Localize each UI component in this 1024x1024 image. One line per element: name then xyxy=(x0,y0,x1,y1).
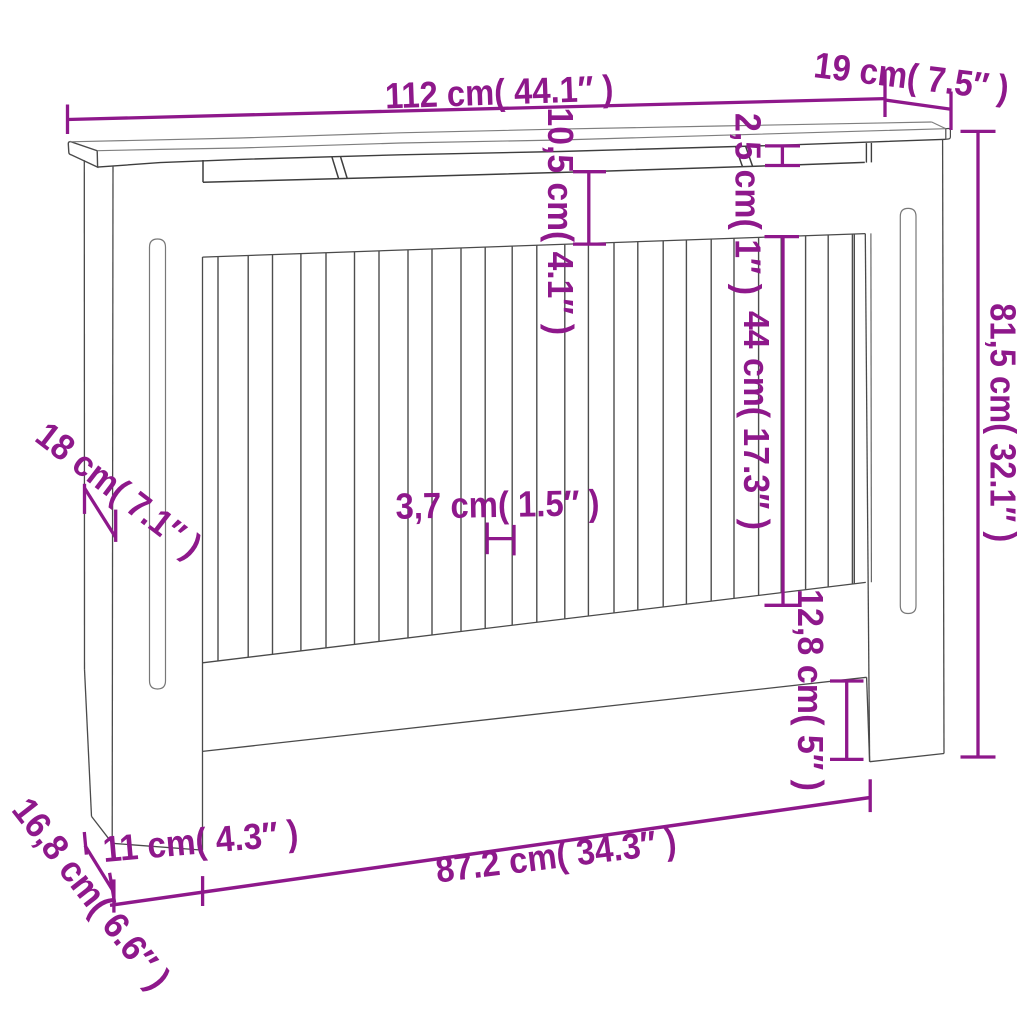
svg-text:81,5 cm( 32.1″ ): 81,5 cm( 32.1″ ) xyxy=(983,303,1024,542)
svg-text:2,5 cm( 1″ ): 2,5 cm( 1″ ) xyxy=(728,113,769,295)
svg-text:44 cm( 17.3″ ): 44 cm( 17.3″ ) xyxy=(736,311,777,530)
svg-text:12,8 cm( 5″ ): 12,8 cm( 5″ ) xyxy=(790,589,831,791)
svg-text:3,7 cm( 1.5″ ): 3,7 cm( 1.5″ ) xyxy=(395,482,600,527)
svg-text:10,5 cm( 4.1″ ): 10,5 cm( 4.1″ ) xyxy=(540,108,581,335)
